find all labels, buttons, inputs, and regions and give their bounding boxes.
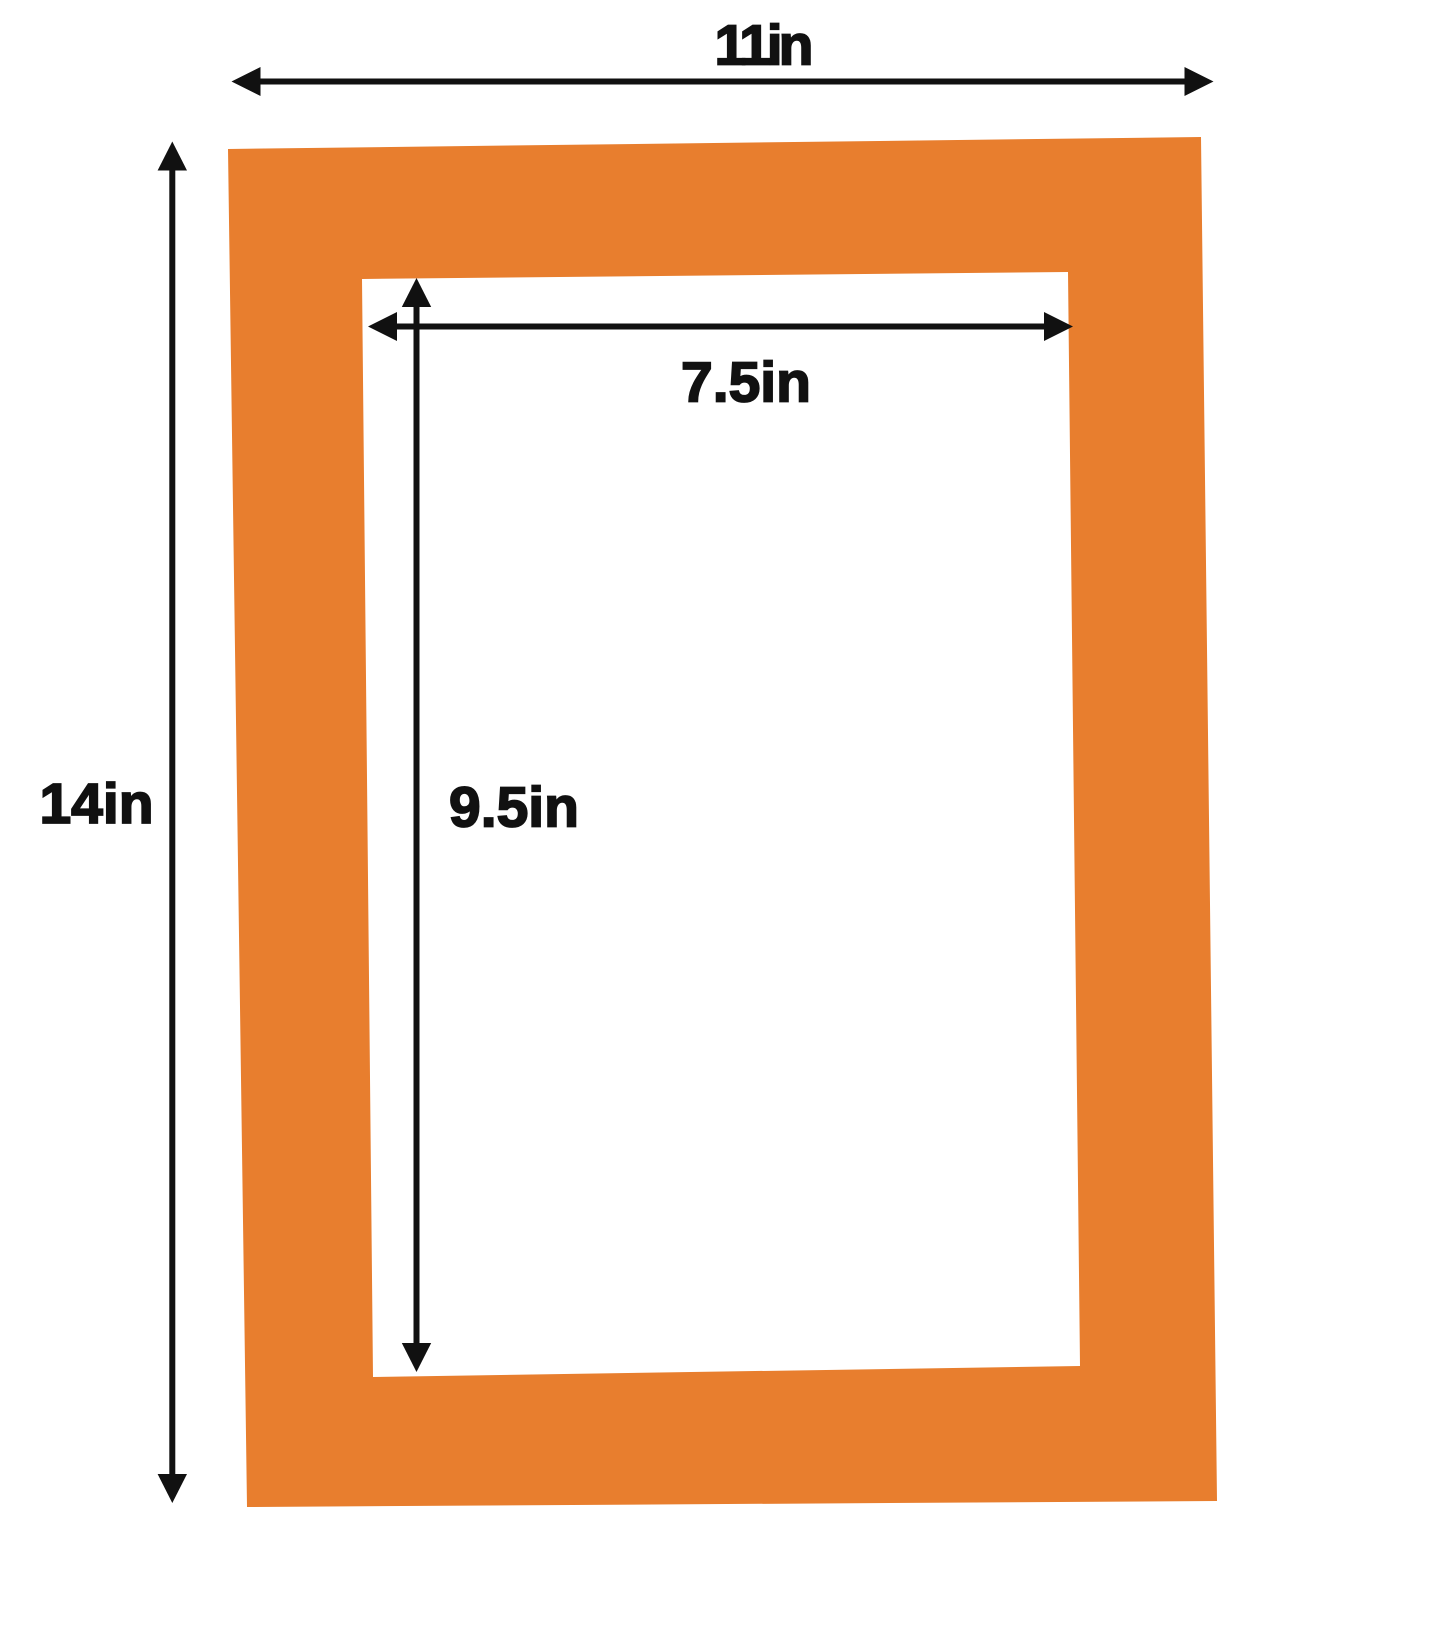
svg-text:7.5in: 7.5in: [681, 351, 811, 415]
svg-text:14in: 14in: [39, 772, 153, 836]
svg-text:9.5in: 9.5in: [449, 776, 579, 840]
svg-text:11in: 11in: [715, 14, 811, 78]
